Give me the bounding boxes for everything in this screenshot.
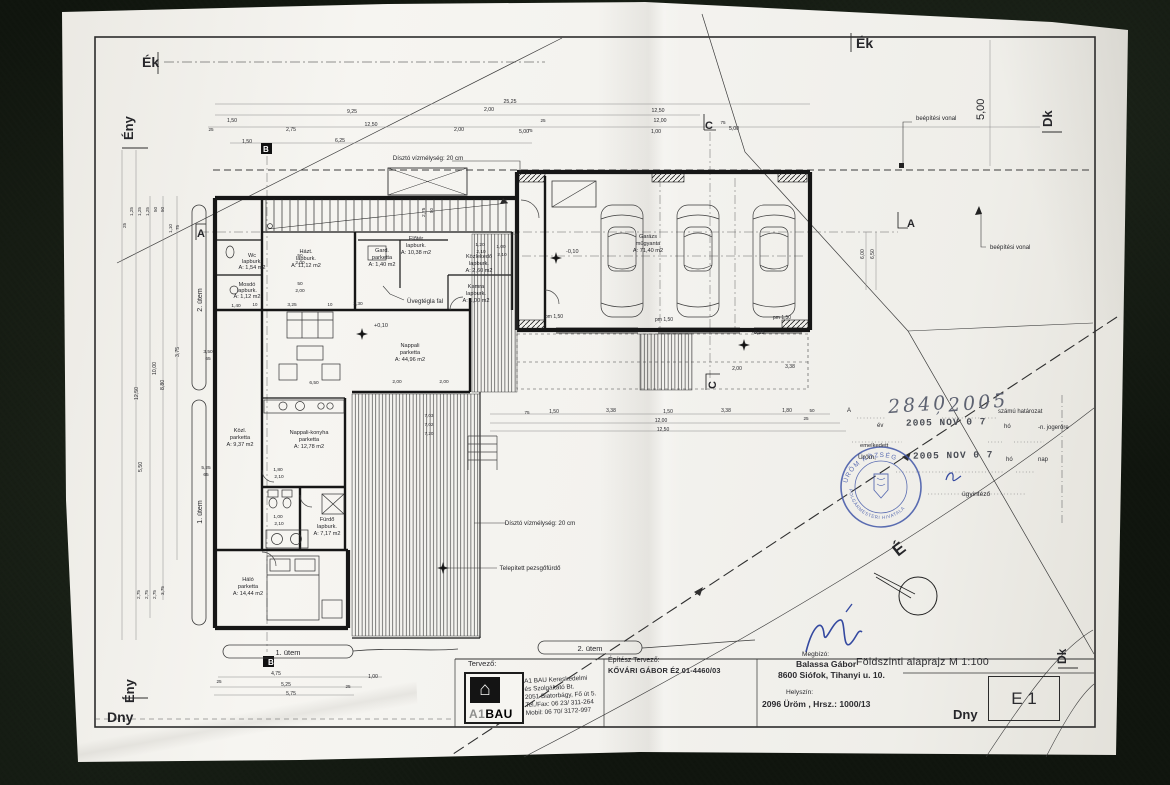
dim-label: 4,75 xyxy=(271,671,281,677)
room-label: Fürdő xyxy=(320,517,335,523)
dim-label: 12,50 xyxy=(652,108,665,114)
pond-note-1: Dísztó vízmélység: 20 cm xyxy=(393,155,464,162)
logo-text: BAU xyxy=(485,707,513,721)
section-b-top: B xyxy=(263,145,269,154)
dim-label: 3,75 xyxy=(160,586,165,595)
section-a-left: A xyxy=(197,228,205,240)
dim-label: 12,50 xyxy=(657,427,670,433)
room-label: A: 1,00 m2 xyxy=(462,298,489,304)
ev-label: év xyxy=(877,423,883,429)
dim-label: 2,00 xyxy=(439,379,449,385)
helyszin-value: 2096 Üröm , Hrsz.: 1000/13 xyxy=(762,699,870,709)
dim-label: 10,00 xyxy=(152,362,158,375)
dim-label: 1,10 xyxy=(168,224,173,233)
dim-label: 25 xyxy=(208,127,214,132)
dim-label: 2,10 xyxy=(497,252,507,258)
dim-label: 2,00 xyxy=(484,107,494,113)
sheet-frame xyxy=(95,33,1095,727)
dim-label: 3,75 xyxy=(175,347,181,357)
dim-label: 5,25 xyxy=(201,465,211,471)
car-3 xyxy=(753,205,795,317)
stamp-ref-letter: A xyxy=(847,408,851,414)
site-boundary-lines xyxy=(117,14,1117,757)
house-icon: ⌂ xyxy=(470,677,500,703)
sheet-number-box: E 1 xyxy=(988,676,1060,721)
room-label: A: 2,60 m2 xyxy=(465,268,492,274)
dim-label: 12,00 xyxy=(655,418,668,424)
dim-label: 2,75 xyxy=(144,590,149,599)
dim-label: 2,00 xyxy=(454,127,464,133)
garage-cars xyxy=(552,181,795,317)
szamu-hatarozat-label: számú határozat xyxy=(998,409,1042,415)
ho-label-2: hó xyxy=(1006,457,1013,463)
dim-label: 1,25 xyxy=(129,207,134,216)
dim-label: 1,00 xyxy=(273,514,283,520)
emelkedett-label: emelkedett xyxy=(860,443,888,449)
dim-label: 8,80 xyxy=(160,380,166,390)
dim-label: 1,40 xyxy=(231,303,241,309)
tervezo-label: Tervező: xyxy=(468,659,496,668)
urom-label: Üröm, xyxy=(858,454,876,461)
dim-label: 2,00 xyxy=(392,379,402,385)
dim-label: 25 xyxy=(216,679,222,684)
room-label: A: 7,17 m2 xyxy=(313,531,340,537)
room-label: A: 1,54 m2 xyxy=(238,265,265,271)
dim-label: 5,25 xyxy=(281,682,291,688)
dim-label: 10 xyxy=(328,302,333,307)
dim-label: 1,50 xyxy=(549,409,559,415)
dim-label: 75 xyxy=(527,128,533,133)
room-label: Garázs xyxy=(639,234,657,240)
dim-label: 2,10 xyxy=(476,249,486,255)
car-2 xyxy=(677,205,719,317)
dim-label: 12,00 xyxy=(654,118,667,124)
signature xyxy=(806,473,961,652)
jogerore-label: -n. jogerőre xyxy=(1038,425,1069,431)
epitesz-name: KŐVÁRI GÁBOR É2 01-4460/03 xyxy=(608,666,721,675)
room-label: lapburk. xyxy=(406,243,426,249)
room-label: Gard. xyxy=(375,248,389,254)
room-label: A: 9,37 m2 xyxy=(226,442,253,448)
pond-note-2: Dísztó vízmélység: 20 cm xyxy=(505,520,576,527)
room-label: Nappali-konyha xyxy=(290,430,330,436)
dim-label: 5,75 xyxy=(286,691,296,697)
dim-label: 2,00 xyxy=(295,260,305,266)
dim-label: 25 xyxy=(540,118,546,123)
megbizo-label: Megbízó: xyxy=(802,651,829,658)
helyszin-label: Helyszín: xyxy=(786,689,813,696)
dim-label: 2,75 xyxy=(421,207,427,217)
building-line-note-2: beépítési vonal xyxy=(990,245,1030,251)
dim-label: 2,75 xyxy=(136,590,141,599)
dim-label: 1,00 xyxy=(368,674,378,680)
dim-label: 2,00 xyxy=(295,288,305,294)
room-label: A: 1,12 m2 xyxy=(233,294,260,300)
photo-of-floorplan: { "colors":{"ink":"#26262a","dim":"#6f6f… xyxy=(0,0,1170,785)
dim-label: 1,50 xyxy=(242,139,252,145)
room-label: Kamra xyxy=(468,284,485,290)
dim-label: 50 xyxy=(429,208,434,213)
dim-label: 65 xyxy=(205,356,211,362)
dim-label: 7,02 xyxy=(425,422,434,427)
section-b-bottom: B xyxy=(268,658,274,667)
dim-label: 75 xyxy=(524,410,530,415)
dim-label: 1,80 xyxy=(782,408,792,414)
dim-label: 50 xyxy=(809,408,815,413)
room-label: A: 44,96 m2 xyxy=(395,357,425,363)
dim-label: 6,00 xyxy=(860,249,866,259)
dim-label: 25 xyxy=(803,416,809,421)
glass-wall-note: Üvegtégla fal xyxy=(407,298,443,305)
dim-label: 7,20 xyxy=(425,431,434,436)
a1bau-logo: ⌂ A1BAU xyxy=(464,672,524,724)
dim-label: 3,38 xyxy=(785,364,795,370)
corner-dny-left: Dny xyxy=(107,709,134,725)
handwritten-comma: , xyxy=(936,402,943,417)
dim-label: 12,50 xyxy=(365,122,378,128)
drawing-title: Földszinti alaprajz M 1:100 xyxy=(856,656,989,668)
megbizo-address: 8600 Siófok, Tihanyi u. 10. xyxy=(778,670,885,680)
north-arrow xyxy=(874,573,937,615)
pm-mark: pm 1,50 xyxy=(545,314,563,320)
dim-label: 1,25 xyxy=(137,207,142,216)
dim-label: 1,00 xyxy=(651,129,661,135)
room-label: A: 71,40 m2 xyxy=(633,248,663,254)
dim-label: 50 xyxy=(297,253,303,259)
room-label: A: 1,40 m2 xyxy=(368,262,395,268)
dim-label: 1,20 xyxy=(475,242,485,248)
dim-label: 6,50 xyxy=(870,249,876,259)
logo-prefix: A1 xyxy=(469,707,485,721)
corner-eny-top: Ény xyxy=(121,115,136,140)
north-letter: É xyxy=(889,538,910,560)
terrace-deck xyxy=(352,234,808,636)
dim-label: 9,25 xyxy=(347,109,357,115)
official-stamp: ÜRÖM KÖZSÉG POLGÁRMESTERI HIVATALA xyxy=(841,447,921,527)
phase2-left: 2. ütem xyxy=(197,288,204,312)
pm-mark: pm 1,50 xyxy=(773,315,791,321)
dim-label: 2,30 xyxy=(353,301,363,307)
room-label: parketta xyxy=(230,435,251,441)
dim-label: 10 xyxy=(253,302,258,307)
room-label: Háló xyxy=(242,577,254,583)
room-label: Előtér xyxy=(409,236,424,242)
dim-label: 2,75 xyxy=(152,590,157,599)
phase2-bottom: 2. ütem xyxy=(577,644,602,653)
room-label: parketta xyxy=(400,350,421,356)
dim-label: 1,00 xyxy=(496,244,506,250)
plan-text-layer: ÉkÉkÉnyÉnyDnyDnyDkDk5,00AABBCCWclapburk.… xyxy=(107,35,1069,725)
section-a-right: A xyxy=(907,218,915,230)
room-label: Nappali xyxy=(401,343,420,349)
level-mark: +0,10 xyxy=(374,323,388,329)
dim-label: 50 xyxy=(297,281,303,287)
dim-label: 3,25 xyxy=(287,302,297,308)
staircase xyxy=(266,198,508,231)
dim-label: 2,10 xyxy=(274,521,284,527)
dim-label: 50 xyxy=(160,206,165,212)
pm-mark: pm 1,50 xyxy=(655,317,673,323)
room-label: műgyanta xyxy=(636,241,661,247)
ho-label-1: hó xyxy=(1004,424,1011,430)
dim-label: 75 xyxy=(175,224,180,230)
level-mark: -0,25 xyxy=(752,330,765,336)
dim-label: 75 xyxy=(720,120,726,125)
dim-label: 1,50 xyxy=(663,409,673,415)
side-dim-5m: 5,00 xyxy=(975,99,987,120)
dim-label: 2,00 xyxy=(732,366,742,372)
corner-dny-right: Dny xyxy=(953,707,978,722)
room-label: lapburk. xyxy=(466,291,486,297)
jacuzzi-note: Telepített pezsgőfürdő xyxy=(500,565,561,572)
phase1-left: 1. ütem xyxy=(197,500,204,524)
dim-label: 50 xyxy=(153,206,158,212)
dim-label: 7,03 xyxy=(425,413,434,418)
room-label: A: 10,38 m2 xyxy=(401,250,431,256)
nap-label: nap xyxy=(1038,457,1048,463)
room-label: lapburk. xyxy=(469,261,489,267)
company-address-block: A1 BAU Kereskedelmi és Szolgáltató Bt. 2… xyxy=(524,674,597,718)
dim-label: 5,00 xyxy=(729,126,739,132)
corner-dk-top: Dk xyxy=(1040,110,1055,127)
dim-label: 6,25 xyxy=(335,138,345,144)
room-label: parketta xyxy=(372,255,393,261)
corner-dk-bottom: Dk xyxy=(1055,648,1069,664)
sheet-number: E 1 xyxy=(1011,689,1037,709)
dim-label: 2,10 xyxy=(274,474,284,480)
ornamental-pond xyxy=(388,168,467,195)
epitesz-label: Építész Tervező: xyxy=(608,657,660,664)
phase1-bottom: 1. ütem xyxy=(275,648,300,657)
corner-ek-left: Ék xyxy=(142,54,159,70)
dim-label: 1,50 xyxy=(227,118,237,124)
room-label: Közl. xyxy=(234,428,247,434)
dim-label: 12,50 xyxy=(134,387,140,400)
dim-label: 25 xyxy=(345,684,351,689)
dim-label: 3,50 xyxy=(203,349,213,355)
dim-label: 3,38 xyxy=(606,408,616,414)
level-mark: -0,10 xyxy=(566,249,579,255)
room-label: lapburk. xyxy=(317,524,337,530)
ugyintezo-label: ügyintéző xyxy=(962,491,990,498)
room-label: parketta xyxy=(238,584,259,590)
dim-label: 2,75 xyxy=(286,127,296,133)
corner-eny-bottom: Ény xyxy=(122,678,137,703)
section-c-bottom: C xyxy=(707,381,719,389)
dim-label: 1,25 xyxy=(145,207,150,216)
dim-label: 25 xyxy=(122,222,127,228)
dim-label: 65 xyxy=(203,472,209,478)
dim-label: 6,50 xyxy=(309,380,319,386)
dim-label: 3,38 xyxy=(721,408,731,414)
dim-label: 5,50 xyxy=(138,462,144,472)
section-c-top: C xyxy=(705,120,713,132)
building-line-note-1: beépítési vonal xyxy=(916,116,956,122)
dim-label: 1,80 xyxy=(273,467,283,473)
room-label: A: 12,78 m2 xyxy=(294,444,324,450)
room-label: A: 14,44 m2 xyxy=(233,591,263,597)
room-label: parketta xyxy=(299,437,320,443)
dim-label: 25,25 xyxy=(504,99,517,105)
car-1 xyxy=(601,205,643,317)
date-stamp-2: 2005 NOV 0 7 xyxy=(913,449,994,461)
corner-ek-top: Ék xyxy=(856,35,873,51)
date-stamp-1: 2005 NOV 0 7 xyxy=(906,416,987,428)
megbizo-name: Balassa Gábor xyxy=(796,659,856,669)
